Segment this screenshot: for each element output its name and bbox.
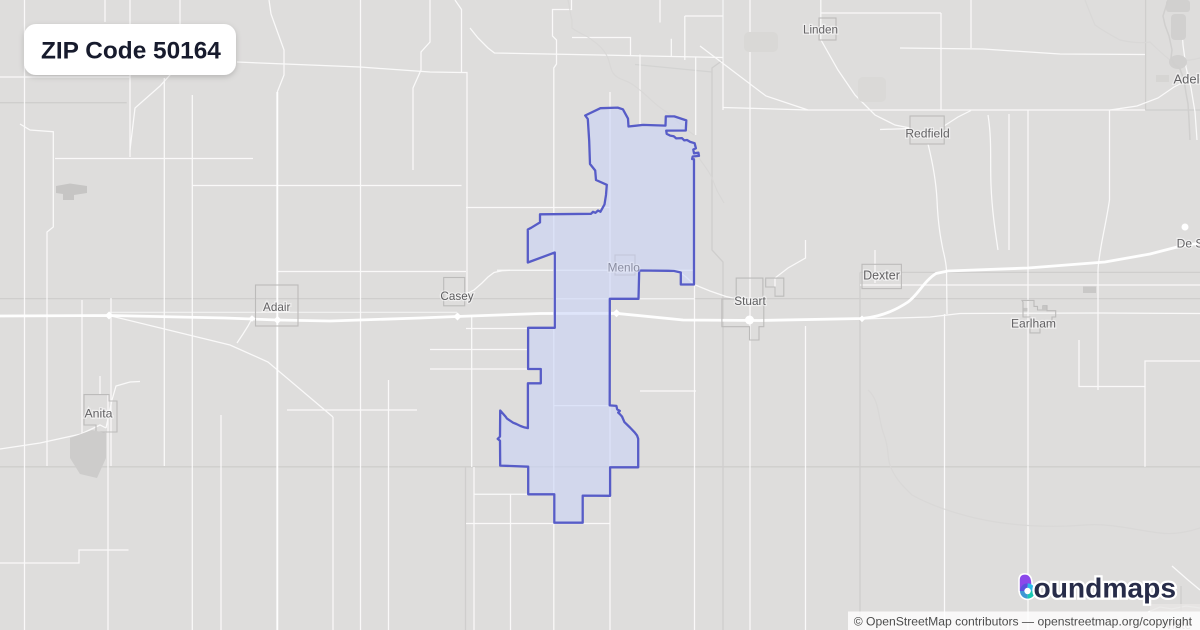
svg-text:Menlo: Menlo	[608, 260, 641, 274]
svg-text:Linden: Linden	[803, 24, 838, 37]
svg-text:Dexter: Dexter	[863, 269, 900, 283]
svg-text:De S: De S	[1177, 237, 1200, 251]
svg-text:Stuart: Stuart	[734, 294, 766, 308]
svg-text:Adair: Adair	[263, 301, 290, 314]
svg-text:oundmaps: oundmaps	[1034, 572, 1177, 604]
svg-text:Casey: Casey	[440, 290, 473, 303]
svg-text:Earlham: Earlham	[1011, 316, 1056, 330]
svg-text:Anita: Anita	[84, 406, 112, 420]
svg-text:ZIP Code 50164: ZIP Code 50164	[41, 38, 221, 65]
svg-text:© OpenStreetMap contributors —: © OpenStreetMap contributors — openstree…	[854, 615, 1193, 629]
svg-text:Adel: Adel	[1173, 72, 1199, 87]
svg-text:Redfield: Redfield	[905, 127, 949, 141]
